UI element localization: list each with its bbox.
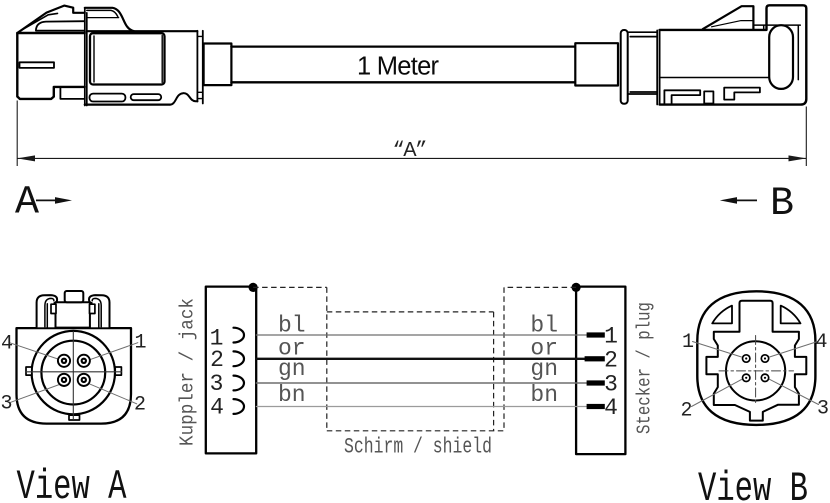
svg-text:2: 2 <box>134 394 146 417</box>
svg-text:Kuppler / jack: Kuppler / jack <box>177 298 199 446</box>
svg-text:4: 4 <box>815 331 827 354</box>
svg-text:B: B <box>770 182 794 227</box>
svg-text:“: “ <box>393 140 405 163</box>
svg-text:4: 4 <box>210 395 224 421</box>
svg-text:1: 1 <box>604 324 618 350</box>
svg-text:”: ” <box>415 140 427 163</box>
svg-text:A: A <box>15 181 39 226</box>
svg-text:gn: gn <box>530 356 558 382</box>
svg-text:gn: gn <box>278 356 306 382</box>
svg-text:2: 2 <box>680 400 692 423</box>
svg-text:1 Meter: 1 Meter <box>357 53 440 81</box>
svg-text:View A: View A <box>17 463 128 503</box>
svg-text:bn: bn <box>530 382 558 408</box>
svg-text:bl: bl <box>530 312 558 338</box>
svg-text:bl: bl <box>278 312 306 338</box>
svg-text:bn: bn <box>278 382 306 408</box>
svg-text:2: 2 <box>604 348 618 374</box>
svg-text:Stecker / plug: Stecker / plug <box>634 302 656 434</box>
svg-text:3: 3 <box>210 371 224 397</box>
svg-text:Schirm / shield: Schirm / shield <box>344 435 492 460</box>
svg-text:2: 2 <box>210 347 224 373</box>
svg-text:3: 3 <box>817 398 829 421</box>
svg-text:3: 3 <box>0 393 12 416</box>
svg-text:4: 4 <box>604 395 618 421</box>
svg-text:1: 1 <box>682 331 694 354</box>
svg-text:3: 3 <box>604 372 618 398</box>
svg-text:View B: View B <box>698 465 808 503</box>
svg-text:4: 4 <box>1 333 13 356</box>
svg-text:1: 1 <box>134 332 146 355</box>
